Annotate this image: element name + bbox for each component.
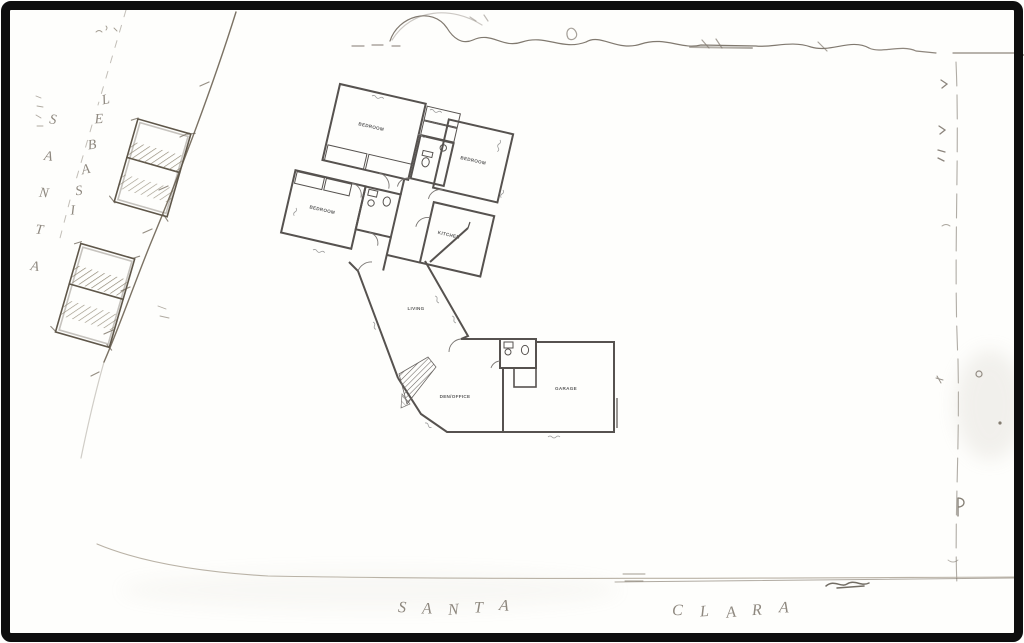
scanned-site-plan: BEDROOM BEDROOM BEDROOM KITCHEN bbox=[0, 0, 1024, 643]
label-living: LIVING bbox=[407, 306, 424, 311]
closet bbox=[294, 172, 324, 190]
street-name-santa-clara-first: SANTA bbox=[398, 599, 525, 619]
closet bbox=[324, 178, 352, 196]
label-bedroom-w: BEDROOM bbox=[309, 204, 336, 215]
bath-fixtures bbox=[365, 131, 447, 220]
closet bbox=[424, 106, 460, 127]
room-bathroom-2 bbox=[356, 186, 401, 237]
front-door-arc bbox=[358, 262, 372, 271]
shower-notch bbox=[514, 368, 536, 387]
bath-fixtures bbox=[504, 342, 529, 355]
door-arcs bbox=[340, 166, 444, 257]
street-name-santa-clara-second: CLARA bbox=[672, 600, 806, 621]
door-arc bbox=[491, 361, 500, 368]
outer-wall bbox=[398, 342, 614, 432]
bedroom-wing: BEDROOM BEDROOM BEDROOM KITCHEN bbox=[278, 79, 515, 292]
label-garage: GARAGE bbox=[555, 386, 577, 391]
room-kitchen bbox=[420, 202, 494, 276]
den-garage-wing bbox=[398, 339, 617, 432]
closet bbox=[324, 145, 367, 170]
label-den-office: DEN/OFFICE bbox=[440, 394, 471, 399]
room-bedroom-nw bbox=[322, 84, 425, 180]
scan-smudge bbox=[955, 350, 1024, 460]
den-door-arc bbox=[449, 339, 461, 352]
floor-plan-layer: BEDROOM BEDROOM BEDROOM KITCHEN bbox=[0, 0, 1024, 643]
scan-smudge bbox=[120, 570, 620, 610]
label-bedroom-ne: BEDROOM bbox=[460, 155, 487, 166]
label-bedroom-nw: BEDROOM bbox=[358, 121, 385, 132]
hall-walls bbox=[383, 179, 437, 278]
living-room-walls bbox=[349, 222, 470, 378]
